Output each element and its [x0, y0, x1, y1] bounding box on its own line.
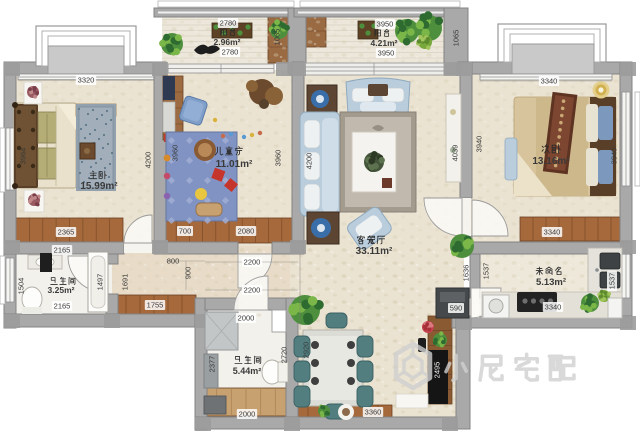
svg-text:3960: 3960 [171, 145, 180, 162]
svg-text:2780: 2780 [220, 19, 237, 28]
svg-text:5.44m²: 5.44m² [233, 366, 262, 376]
svg-text:3.25m²: 3.25m² [48, 285, 75, 295]
svg-text:2377: 2377 [208, 356, 217, 373]
svg-text:3340: 3340 [541, 77, 558, 86]
svg-text:2495: 2495 [433, 362, 442, 379]
svg-text:15.99m²: 15.99m² [80, 181, 118, 192]
svg-text:2720: 2720 [280, 347, 289, 364]
svg-text:4200: 4200 [305, 153, 314, 170]
svg-text:2365: 2365 [58, 228, 75, 237]
svg-text:4.21m²: 4.21m² [371, 38, 398, 48]
svg-text:2920: 2920 [302, 342, 311, 359]
svg-text:2165: 2165 [54, 302, 71, 311]
svg-text:2080: 2080 [238, 227, 255, 236]
svg-text:3964: 3964 [19, 148, 28, 165]
svg-text:3340: 3340 [545, 303, 562, 312]
svg-text:900: 900 [184, 267, 193, 280]
svg-text:1065: 1065 [452, 30, 461, 47]
svg-text:2000: 2000 [239, 410, 256, 419]
svg-text:1497: 1497 [96, 274, 105, 291]
svg-text:1537: 1537 [608, 273, 617, 290]
svg-text:1636: 1636 [462, 265, 471, 282]
svg-text:2200: 2200 [244, 286, 261, 295]
svg-text:1537: 1537 [482, 263, 491, 280]
svg-text:2000: 2000 [238, 314, 255, 323]
svg-text:1755: 1755 [147, 301, 164, 310]
svg-text:3960: 3960 [274, 150, 283, 167]
svg-text:800: 800 [167, 257, 180, 266]
svg-text:3360: 3360 [365, 408, 382, 417]
svg-text:1065: 1065 [273, 29, 282, 46]
svg-text:13.16m²: 13.16m² [532, 156, 570, 167]
svg-text:3320: 3320 [78, 76, 95, 85]
svg-text:1504: 1504 [17, 278, 26, 295]
svg-text:4200: 4200 [144, 152, 153, 169]
svg-text:3940: 3940 [475, 136, 484, 153]
svg-text:2780: 2780 [222, 48, 239, 57]
svg-text:3950: 3950 [378, 49, 395, 58]
svg-text:590: 590 [450, 304, 463, 313]
svg-text:700: 700 [179, 227, 192, 236]
svg-text:2165: 2165 [54, 246, 71, 255]
svg-text:3940: 3940 [610, 148, 619, 165]
svg-text:4039: 4039 [451, 145, 460, 162]
svg-text:2200: 2200 [244, 258, 261, 267]
svg-text:11.01m²: 11.01m² [216, 159, 253, 170]
svg-text:1691: 1691 [121, 274, 130, 291]
svg-text:3950: 3950 [377, 20, 394, 29]
svg-text:5.13m²: 5.13m² [536, 277, 566, 288]
svg-text:3340: 3340 [544, 228, 561, 237]
svg-text:2.96m²: 2.96m² [214, 37, 241, 47]
svg-text:33.11m²: 33.11m² [356, 246, 393, 257]
